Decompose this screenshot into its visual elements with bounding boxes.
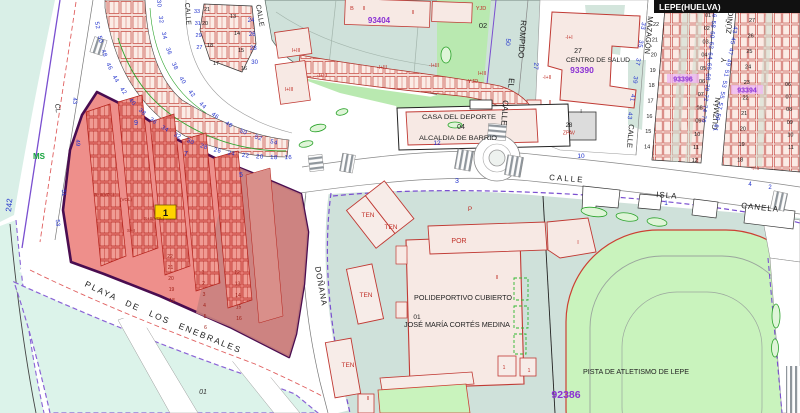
parcel-number: 19 [169,287,175,293]
parcel-number: 11 [788,145,794,151]
parcel-number: 31 [195,21,201,27]
parcel-number: 18 [649,83,655,89]
edificio28-code: ZPAV [563,131,576,137]
por-label: POR [451,238,466,245]
map-tiny-label: S+II [127,228,135,233]
map-tiny-label: 49 [74,139,81,147]
centro-block-id: 93390 [570,65,594,75]
block-id-east: 93394 [737,88,757,95]
map-tiny-label: 51 [60,189,67,197]
map-tiny-label: 50 [504,38,511,46]
map-tiny-label: P [468,206,472,213]
map-tiny-label: II [412,10,415,16]
map-tiny-label: YJD [476,6,486,12]
parcel-number: 5 [204,314,207,320]
map-tiny-label: II [367,396,370,402]
map-tiny-label: 18 [207,43,213,49]
map-tiny-label: 1 [503,365,506,371]
map-tiny-label: 12 [433,140,441,147]
parcel-number: 33 [194,9,200,15]
parcel-number: 6 [204,325,207,331]
pista-block-id: 92386 [551,389,580,401]
parcel-number: 28 [250,46,257,52]
pista-name: PISTA DE ATLETISMO DE LEPE [583,369,689,376]
map-tiny-label: -I+III [429,63,439,69]
athletics-track-outer [566,230,800,413]
parcel-number: 15 [645,129,651,135]
map-tiny-label: -I+II [751,166,759,171]
parcel-number: 1 [202,270,205,276]
parcel-number: 19 [739,142,745,148]
parcel-number: 24 [745,65,751,71]
parcel-number: 15 [236,305,242,311]
parcel-number: 12 [234,270,240,276]
polideportivo-number: 01 [413,314,421,321]
map-tiny-label: 27 [532,62,539,70]
map-tiny-label: 13 [230,14,236,20]
cadastral-map-viewport[interactable]: CL MS 242 CALLE CALLE ROMPIDO EL CALLE M… [0,0,800,413]
edificio28-number: 28 [566,123,573,129]
parcel-number: 25 [746,49,752,55]
map-tiny-label: 1 [664,200,668,207]
parcel-number: 09 [787,120,793,126]
map-tiny-label: II [549,100,552,106]
parcel-number: 08 [786,107,792,113]
casa-name: CASA DEL DEPORTE [422,114,496,121]
parcel-number: 17 [647,99,653,105]
map-tiny-label: I+III [478,71,486,77]
parcel-number: 10 [787,132,793,138]
map-title-bar: LEPE(HUELVA) [654,0,800,13]
map-tiny-label: I+III [285,87,293,93]
polideportivo-subname: JOSÉ MARÍA CORTÉS MEDINA [404,320,510,329]
map-tiny-label: 1 [528,368,531,374]
parcel-number: 21 [168,265,174,271]
parcel-number: 22 [653,22,659,28]
parcel-number: 10 [694,132,700,138]
map-tiny-label: 20 [202,21,208,27]
map-tiny-label: II [363,6,366,12]
parcel-number: 20 [168,276,174,282]
parcel-number: 01 [705,13,711,19]
casa-number: 04 [457,124,465,131]
map-tiny-label: 17 [213,61,219,67]
boundary-number-242: 242 [4,197,14,212]
map-tiny-label: -I+III [317,73,327,79]
map-tiny-label: I+III [292,48,300,54]
map-tiny-label: 16 [241,66,247,72]
parcel-number: 12 [692,158,698,164]
map-tiny-label: 9 [134,120,138,127]
map-canvas[interactable]: CL MS 242 CALLE CALLE ROMPIDO EL CALLE M… [0,0,800,413]
ten-label: TEN [342,362,355,369]
map-tiny-label: I [580,109,581,115]
map-tiny-label: YJD [468,79,478,85]
parcel-number: 22 [742,96,748,102]
parcel-number: 18 [737,158,743,164]
parcel-number: 19 [650,68,656,74]
parcel-number: 20 [651,53,657,59]
map-tiny-label: -I+III [377,65,387,71]
parcel-number: 21 [741,111,747,117]
ten-label: TEN [360,292,373,299]
plot-01-label: 01 [199,389,207,396]
polideportivo-name: POLIDEPORTIVO CUBIERTO [414,295,513,302]
parcel-number: 23 [744,80,750,86]
parcel-number: 4 [203,303,206,309]
parcel-number: 14 [235,293,241,299]
parcel-number: 24 [248,18,255,24]
parcel-number: 20 [740,127,746,133]
street-name-calle-rompido: CALLE [499,100,510,126]
map-tiny-label: (VOL) [120,197,133,202]
parcel-number: 16 [646,114,652,120]
crosswalk [308,154,324,172]
map-tiny-label: II [496,275,499,281]
street-name-el: EL [506,78,516,89]
map-tiny-label: S+II(VOL) [94,192,115,197]
parcel-number: 26 [748,34,754,40]
map-tiny-label: 10 [577,153,585,160]
parcel-number: 16 [236,316,242,322]
map-tiny-label: 21 [204,7,210,13]
parcel-number: 07 [786,95,792,101]
parcel-number: 18 [169,298,175,304]
map-tiny-label: 5 [239,172,243,179]
alcaldia-name: ALCALDIA DE BARRIO [419,135,497,142]
parcel-number: 26 [249,32,256,38]
parcel-number: 11 [693,145,699,151]
parcel-number: 22 [167,254,173,260]
street-name-cl: CL [53,103,61,113]
zone-number-02: 02 [479,21,487,30]
map-tiny-label: 7 [184,151,188,158]
map-title: LEPE(HUELVA) [659,2,721,12]
parcel-number: 3 [203,292,206,298]
map-tiny-label: -I+II [543,75,552,81]
map-tiny-label: 14 [234,31,240,37]
block-id-top: 93404 [368,16,391,25]
map-tiny-label: B [350,6,354,12]
centro-number: 27 [574,48,582,55]
parcel-number: 29 [196,33,202,39]
parcel-number: 21 [652,37,658,43]
centro-name: CENTRO DE SALUD [566,57,630,64]
parcel-number: 13 [235,282,241,288]
map-tiny-label: 3 [455,178,459,185]
parcel-number: 2 [202,281,205,287]
map-tiny-label: -I+I [565,35,572,41]
map-tiny-label: 15 [238,48,244,54]
map-tiny-label: S+II(VOL) [144,216,165,221]
parcel-number: 30 [251,60,258,66]
crosswalk [454,149,473,171]
zone-label-ms: MS [33,152,46,161]
map-tiny-label: 43 [71,97,78,105]
block-id-middle: 93396 [673,77,693,84]
ten-label: TEN [385,224,398,231]
map-tiny-label: 53 [54,219,61,227]
parcel-number: 27 [196,45,202,51]
parcel-number: 27 [749,18,755,24]
ten-label: TEN [362,212,375,219]
parcel-number: 06 [785,82,791,88]
crosswalk [504,155,523,177]
parcel-number: 14 [644,144,650,150]
